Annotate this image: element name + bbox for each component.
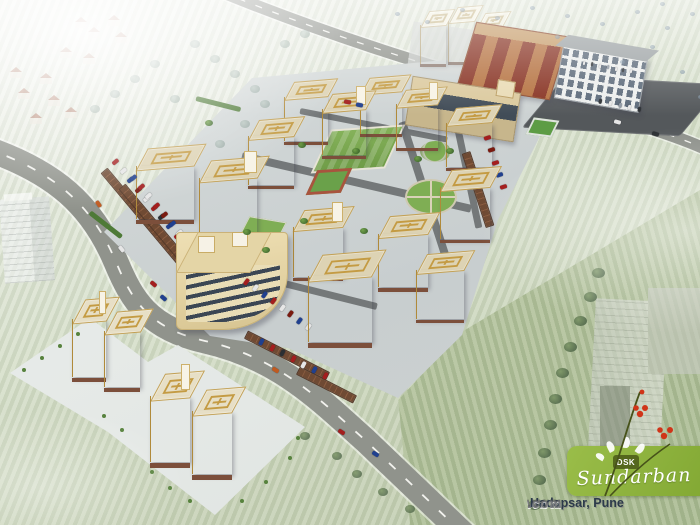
tree-speck <box>650 45 655 49</box>
tower-body <box>150 396 190 462</box>
tree-speck <box>665 26 670 30</box>
tree-speck <box>680 70 685 74</box>
tower-side-face <box>308 276 309 342</box>
tower-body <box>199 178 257 233</box>
tower-side-face <box>448 21 449 62</box>
tower-roof-crown <box>452 172 489 186</box>
tower-side-face <box>420 25 421 64</box>
apartment-tower <box>104 310 140 390</box>
tower-base <box>136 220 194 224</box>
tree-speck <box>530 6 535 10</box>
parked-car <box>606 65 609 69</box>
tower-side-face <box>440 187 441 239</box>
tower-base <box>440 240 490 244</box>
tower-roof-crown <box>428 14 448 24</box>
shrub <box>264 480 268 484</box>
parked-car <box>598 64 601 68</box>
faded-tree <box>230 70 240 78</box>
tree-speck <box>555 35 560 39</box>
tree-speck <box>460 8 465 12</box>
shrub <box>40 356 44 360</box>
tower-base <box>396 148 438 151</box>
tower-body <box>308 276 372 342</box>
faded-tree <box>240 120 250 128</box>
tower-roof-crown <box>260 122 294 135</box>
apartment-tower <box>396 88 438 150</box>
tree-speck <box>600 22 605 26</box>
tree-speck <box>660 2 665 6</box>
tower-roof-crown <box>150 150 192 165</box>
faded-tree <box>90 105 100 113</box>
tower-roof-crown <box>391 218 428 232</box>
shrub <box>168 486 172 490</box>
tower-side-face <box>150 396 151 462</box>
field-tree <box>352 470 362 478</box>
faded-tree <box>150 60 160 68</box>
faded-tree <box>110 90 120 98</box>
tower-body <box>440 187 490 239</box>
shrub <box>22 368 26 372</box>
tower-body <box>416 270 464 319</box>
tower-side-face <box>72 319 73 376</box>
tower-base <box>416 320 464 324</box>
faded-tree <box>260 100 270 108</box>
shrub <box>240 499 244 503</box>
tower-side-face <box>446 123 447 168</box>
field-tree <box>332 452 342 460</box>
tree-speck <box>425 20 430 24</box>
tower-lift-shaft <box>244 151 257 173</box>
tower-lift-shaft <box>181 364 190 390</box>
tower-roof-crown <box>428 256 463 269</box>
field-tree <box>378 488 388 496</box>
field-tree <box>300 432 310 440</box>
faded-tree <box>210 55 220 63</box>
shrub <box>150 470 154 474</box>
mixed-use-building <box>176 232 288 330</box>
flower-stem-graphic <box>560 378 700 503</box>
shrub <box>120 428 124 432</box>
tower-base <box>72 378 106 382</box>
tower-body <box>72 319 106 376</box>
tower-side-face <box>104 331 105 387</box>
tower-base <box>322 156 366 159</box>
tower-lift-shaft <box>332 202 343 222</box>
tower-lift-shaft <box>429 82 438 99</box>
rooftop-unit <box>198 236 215 253</box>
shrub <box>288 456 292 460</box>
shrub <box>188 499 192 503</box>
apartment-tower <box>192 388 232 478</box>
apartment-tower <box>72 298 106 380</box>
tree-speck <box>635 10 640 14</box>
tower-base <box>308 343 372 348</box>
tower-body <box>104 331 140 387</box>
tower-side-face <box>293 227 294 277</box>
tower-roof-crown <box>203 394 235 410</box>
tree-speck <box>395 12 400 16</box>
tower-roof-crown <box>457 110 490 122</box>
scene: DSK Sundarban www. Hadapsar, Pune .com <box>0 0 700 525</box>
shrub <box>58 344 62 348</box>
tower-body <box>396 104 438 147</box>
tower-side-face <box>322 109 323 155</box>
shrub <box>102 414 106 418</box>
tower-side-face <box>192 411 193 474</box>
tower-body <box>420 25 446 64</box>
faded-tree <box>170 95 180 103</box>
existing-highrise-west <box>0 196 55 283</box>
apartment-tower <box>420 10 446 66</box>
tower-base <box>104 388 140 392</box>
apartment-tower <box>199 158 257 236</box>
faded-tree <box>250 85 260 93</box>
tower-side-face <box>199 178 200 233</box>
tree-speck <box>690 12 695 16</box>
faded-tree <box>215 140 225 148</box>
faded-tree <box>280 40 290 48</box>
apartment-tower <box>440 168 490 242</box>
apartment-tower <box>150 372 190 466</box>
parked-car <box>614 66 617 70</box>
apartment-tower <box>308 252 372 346</box>
apartment-tower <box>416 252 464 322</box>
tower-roof-crown <box>324 257 372 275</box>
existing-building-wing <box>648 288 700 374</box>
tree-speck <box>565 14 570 18</box>
faded-tree <box>300 30 310 38</box>
tower-side-face <box>416 270 417 319</box>
tower-body <box>192 411 232 474</box>
red-flower <box>657 427 673 439</box>
tower-base <box>192 475 232 480</box>
tower-side-face <box>396 104 397 147</box>
tower-base <box>420 64 446 67</box>
faded-tree <box>190 40 200 48</box>
tower-base <box>150 463 190 468</box>
tree-speck <box>495 16 500 20</box>
tower-roof-crown <box>114 315 142 329</box>
faded-tree <box>130 75 140 83</box>
field-tree <box>405 505 415 513</box>
tree-speck <box>620 60 625 64</box>
tower-roof-crown <box>456 10 476 20</box>
watermark-suffix: .com <box>527 496 563 511</box>
